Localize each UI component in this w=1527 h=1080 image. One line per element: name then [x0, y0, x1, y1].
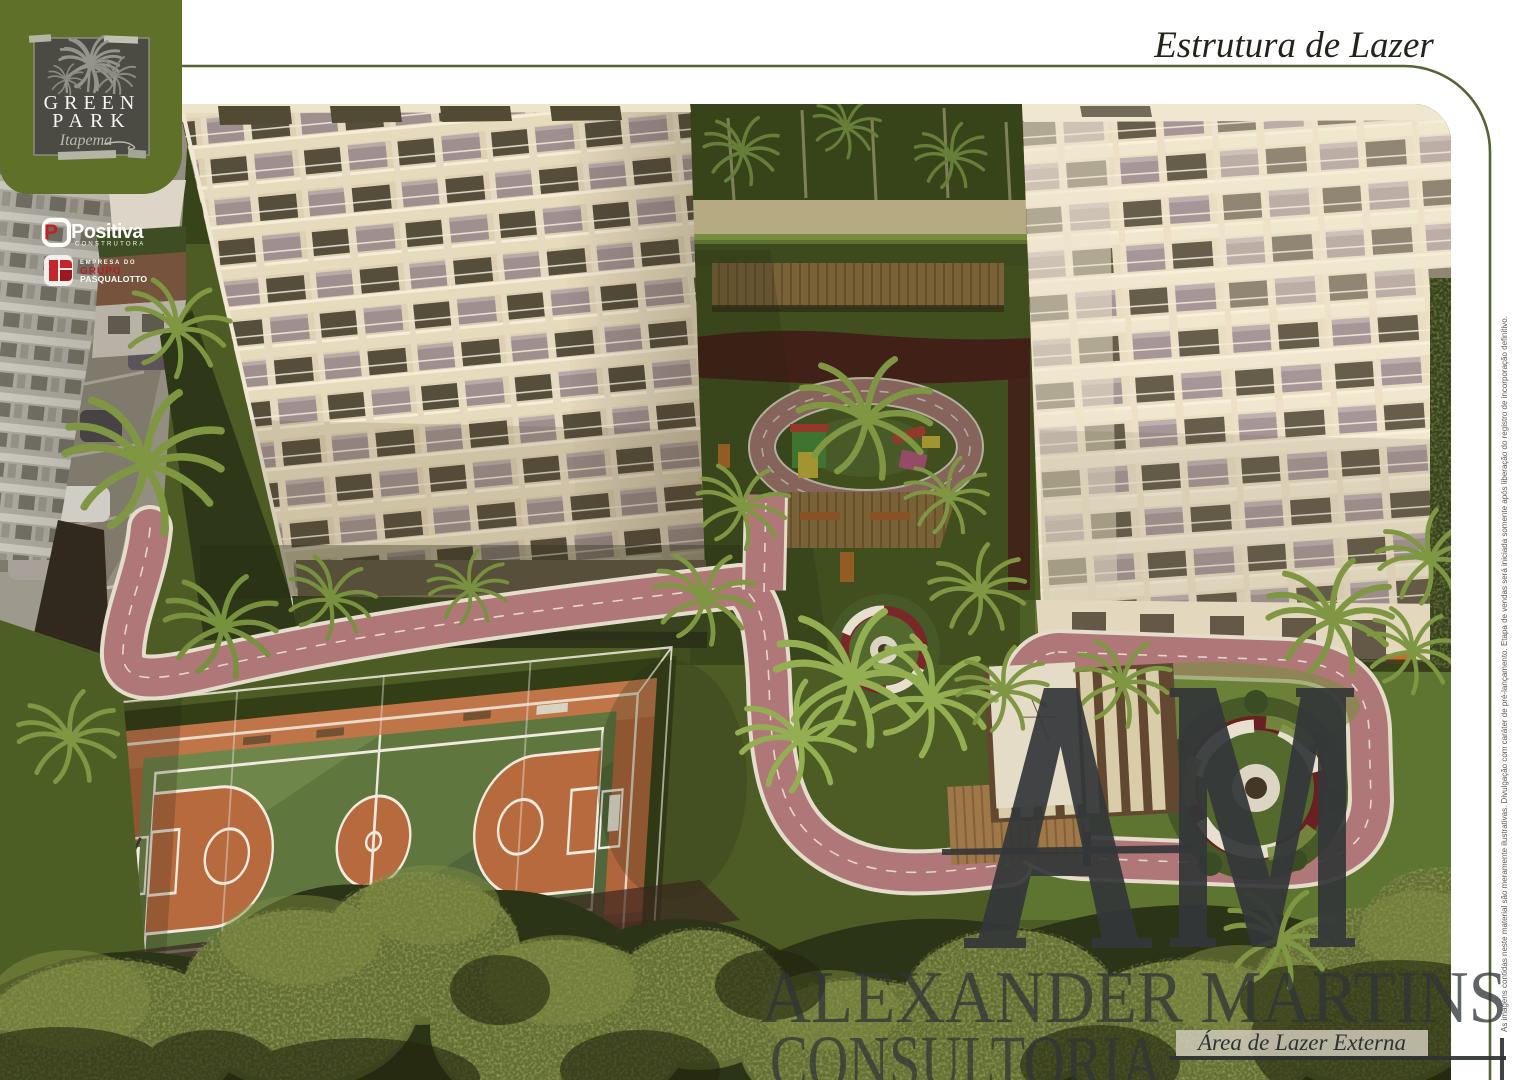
svg-text:Positiva: Positiva	[71, 221, 144, 243]
svg-text:CONSULTORIA: CONSULTORIA	[770, 1021, 1162, 1080]
svg-text:Área de Lazer Externa: Área de Lazer Externa	[1196, 1030, 1406, 1055]
svg-text:PARK: PARK	[52, 110, 132, 132]
svg-text:P: P	[44, 221, 58, 244]
svg-text:PASQUALOTTO: PASQUALOTTO	[80, 274, 147, 284]
svg-text:Estrutura de Lazer: Estrutura de Lazer	[1153, 25, 1434, 66]
svg-text:As imagens contidas neste mate: As imagens contidas neste material são m…	[1500, 316, 1509, 1032]
svg-text:Itapema: Itapema	[59, 132, 112, 149]
svg-text:CONSTRUTORA: CONSTRUTORA	[75, 242, 145, 248]
